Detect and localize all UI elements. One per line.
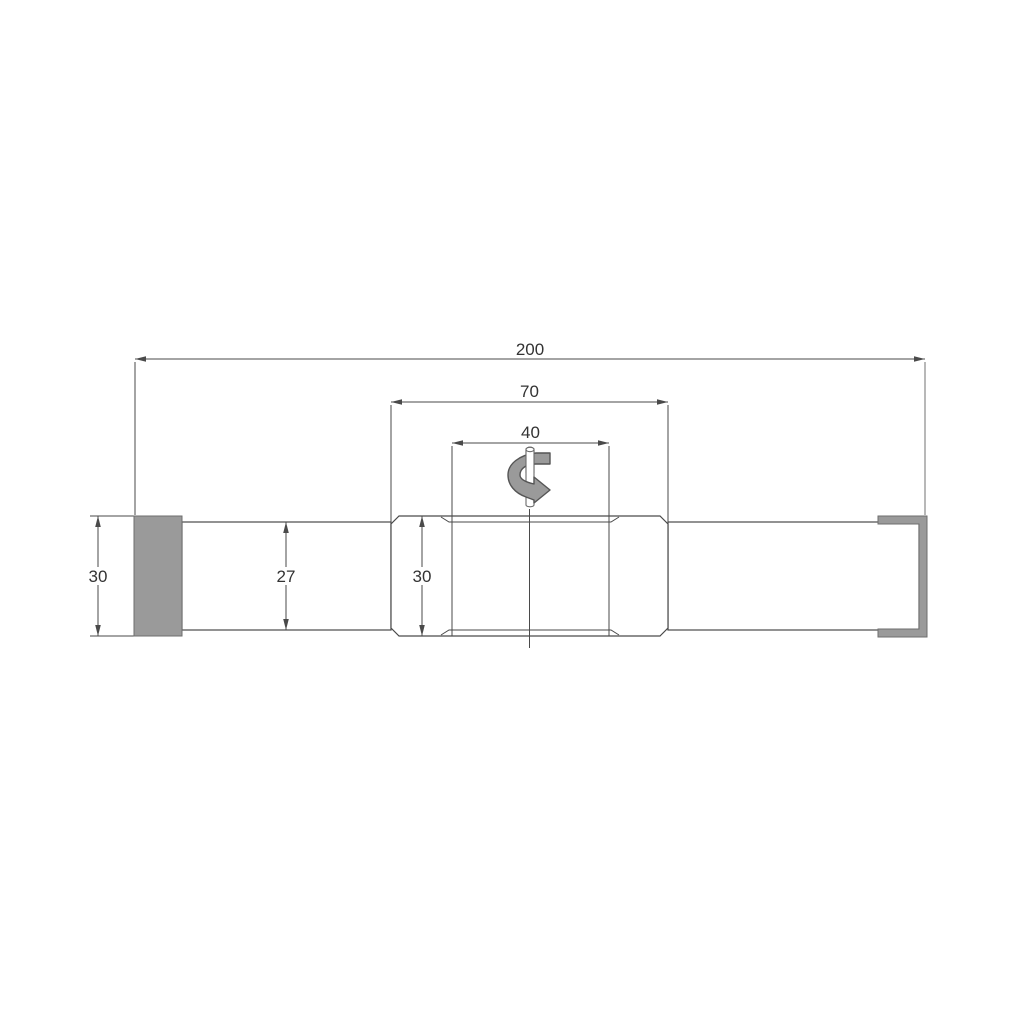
dim-label-shaft-height: 27 (277, 567, 296, 586)
dim-label-mid-section-height: 30 (413, 567, 432, 586)
drawing-background (0, 0, 1024, 1024)
technical-drawing-canvas: 200 70 40 30 27 30 (0, 0, 1024, 1024)
dim-label-left-end-height: 30 (89, 567, 108, 586)
shaft-right-section (668, 522, 919, 630)
dim-label-mid-section-length: 70 (520, 382, 539, 401)
dim-label-hex-section-length: 40 (521, 423, 540, 442)
shaft-drawing: 200 70 40 30 27 30 (0, 0, 1024, 1024)
dim-label-overall-length: 200 (516, 340, 544, 359)
left-end-cap-block (134, 516, 182, 636)
